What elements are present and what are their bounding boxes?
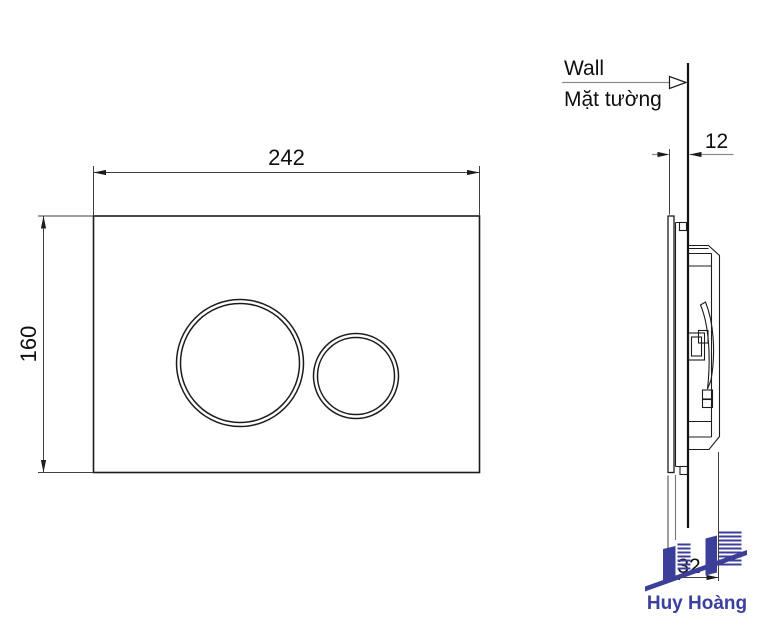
height-extension-lines: [38, 216, 94, 473]
offset-dimension: 12: [652, 130, 734, 215]
side-view: Wall Mặt tường 12 32: [562, 57, 734, 581]
large-flush-button-outer: [177, 300, 304, 427]
technical-drawing-flush-plate: 242 160: [0, 0, 763, 637]
small-flush-button-inner: [318, 338, 395, 415]
width-extension-lines: [94, 166, 480, 216]
offset-arrow-left: [658, 152, 670, 157]
large-flush-button-inner: [181, 304, 300, 423]
width-dimension: 242: [94, 145, 480, 216]
plate-clip-bottom: [680, 467, 688, 475]
huy-hoang-logo: Huy Hoàng: [645, 532, 747, 615]
width-arrow-left: [94, 170, 107, 175]
plate-front-panel-section: [668, 216, 674, 473]
plate-section: [668, 216, 688, 475]
depth-arrow-right: [707, 575, 719, 580]
mechanism-outline: [688, 246, 720, 450]
plate-clip-top: [680, 223, 687, 231]
width-dimension-label: 242: [268, 145, 305, 170]
height-dimension-label: 160: [16, 326, 41, 363]
height-arrow-top: [41, 216, 46, 229]
height-arrow-bottom: [41, 460, 46, 473]
offset-dimension-label: 12: [705, 130, 728, 153]
mechanism-clip-inner: [692, 337, 702, 356]
wall-label-en: Wall: [564, 57, 604, 80]
wall-label-vi: Mặt tường: [564, 88, 662, 111]
height-dimension: 160: [16, 216, 94, 473]
logo-brand-text: Huy Hoàng: [647, 593, 747, 614]
drawing-svg: 242 160: [0, 0, 763, 637]
flush-plate-outline: [94, 216, 480, 473]
logo-tower-right: [706, 536, 718, 576]
cistern-mechanism-section: [676, 246, 720, 541]
plate-frame-section: [676, 223, 688, 467]
wall-callout-arrowhead: [670, 77, 687, 89]
wall-callout: Wall Mặt tường: [562, 57, 686, 111]
width-arrow-right: [467, 170, 480, 175]
offset-arrow-right: [690, 152, 702, 157]
small-flush-button-outer: [314, 334, 399, 419]
front-view: [94, 216, 480, 473]
